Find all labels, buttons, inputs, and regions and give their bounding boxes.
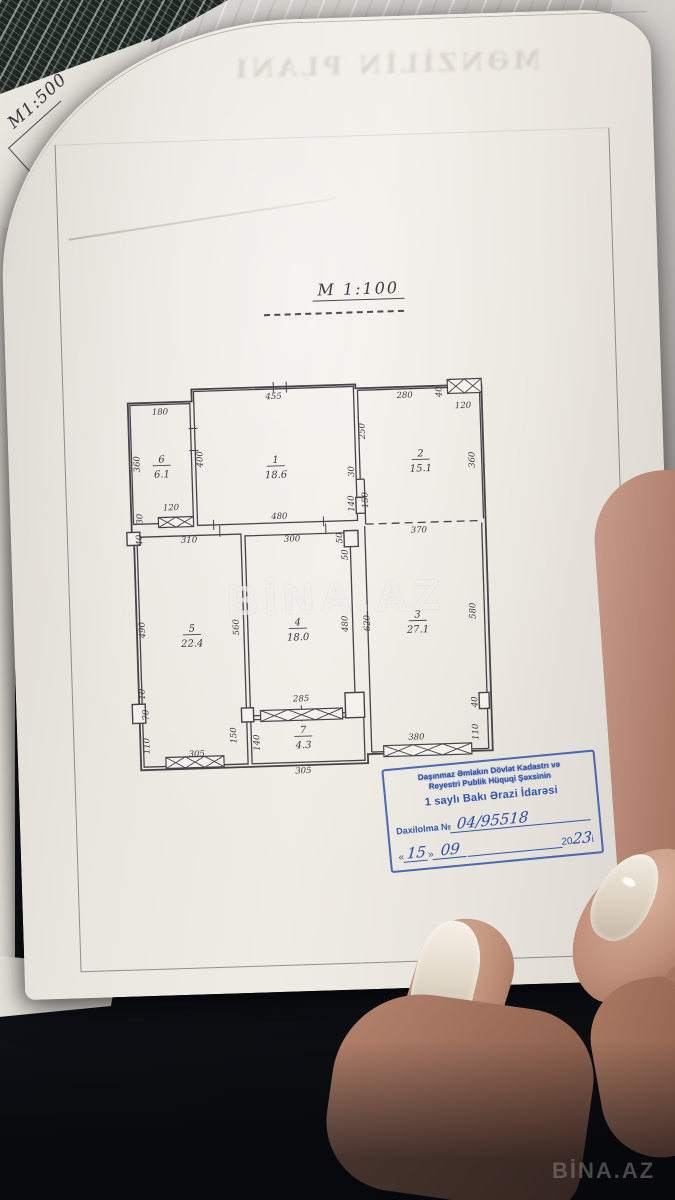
dimension-label: 480 <box>270 512 288 523</box>
scale-heading: M 1:100 <box>298 277 419 300</box>
stamp-year-handwritten: 23 <box>572 830 592 847</box>
bina-az-watermark-center: BİNA.AZ <box>216 570 457 626</box>
scale-heading-text: M 1:100 <box>312 278 404 302</box>
room-number: 5 <box>189 624 196 635</box>
dimension-label: 370 <box>411 525 428 536</box>
stamp-month-handwritten: 09 <box>433 841 468 860</box>
dimension-label: 180 <box>152 407 169 418</box>
dimension-label: 110 <box>471 723 482 740</box>
room-area: 22.4 <box>180 638 204 650</box>
room-number: 2 <box>416 448 424 459</box>
dimension-label: 40 <box>470 696 480 709</box>
dimension-label: 305 <box>189 749 206 760</box>
dimension-label: 580 <box>468 602 479 619</box>
dimension-label: 310 <box>181 535 198 546</box>
dimension-label: 70 <box>141 709 151 721</box>
dimension-label: 120 <box>455 401 472 412</box>
dimension-label: 360 <box>467 451 478 468</box>
wall-pier <box>479 692 489 708</box>
dimension-label: 40 <box>135 534 145 547</box>
bina-az-watermark-corner: BİNA.AZ <box>552 1158 672 1184</box>
room-area: 15.1 <box>410 463 433 475</box>
paper-sheet: MƏNZİLİN PLANI M 1:100 66.1118.6215.1522… <box>0 8 675 1000</box>
wall-pier <box>344 530 358 546</box>
dimension-label: 280 <box>395 391 413 402</box>
registry-stamp: Daşınmaz Əmlakın Dövlət Kadastrı və Reye… <box>381 749 604 872</box>
dimension-label: 490 <box>138 621 149 639</box>
stamp-day-handwritten: 15 <box>403 844 428 862</box>
dimension-label: 120 <box>163 503 180 514</box>
dimension-label: 150 <box>229 727 240 744</box>
dimension-label: 305 <box>295 766 312 777</box>
room-area: 18.6 <box>265 470 288 482</box>
bleed-through-header-text: MƏNZİLİN PLANI <box>146 43 627 87</box>
dimension-label: 250 <box>357 422 368 440</box>
stamp-entry-label: Daxilolma № <box>396 821 452 838</box>
dimension-label: 110 <box>142 737 153 754</box>
room-number: 1 <box>272 455 279 466</box>
wall-pier <box>345 692 365 718</box>
photo-of-floor-plan-document: М1:500 MƏNZİLİN PLANI M 1:100 66.1118.62… <box>0 0 675 1200</box>
room-number: 7 <box>300 725 307 736</box>
dimension-label: 300 <box>284 534 301 545</box>
stamp-entry-number-handwritten: 04/95518 <box>450 804 592 833</box>
room-number: 6 <box>158 454 165 465</box>
dimension-label: 50 <box>335 532 345 544</box>
dimension-label: 30 <box>347 465 357 477</box>
dimension-label: 10 <box>138 688 148 700</box>
room-area: 4.3 <box>294 740 311 752</box>
room-area: 27.1 <box>406 624 430 636</box>
dimension-label: 360 <box>132 455 143 472</box>
window-symbol <box>447 378 481 393</box>
dimension-label: 140 <box>252 734 263 751</box>
dimension-label: 400 <box>195 450 206 468</box>
dimension-label: 455 <box>264 392 282 403</box>
room-area: 18.0 <box>287 632 310 644</box>
dimension-label: 285 <box>292 694 310 705</box>
dimension-label: 30 <box>135 513 145 525</box>
window-symbol <box>158 517 193 528</box>
room-area: 6.1 <box>154 469 170 480</box>
dimension-label: 140 <box>347 495 358 512</box>
dimension-label: 380 <box>408 732 425 743</box>
dimension-label: 40 <box>434 386 444 399</box>
wall-pier <box>241 708 253 722</box>
dimension-label: 150 <box>361 491 372 508</box>
dimension-label: 50 <box>340 549 350 561</box>
